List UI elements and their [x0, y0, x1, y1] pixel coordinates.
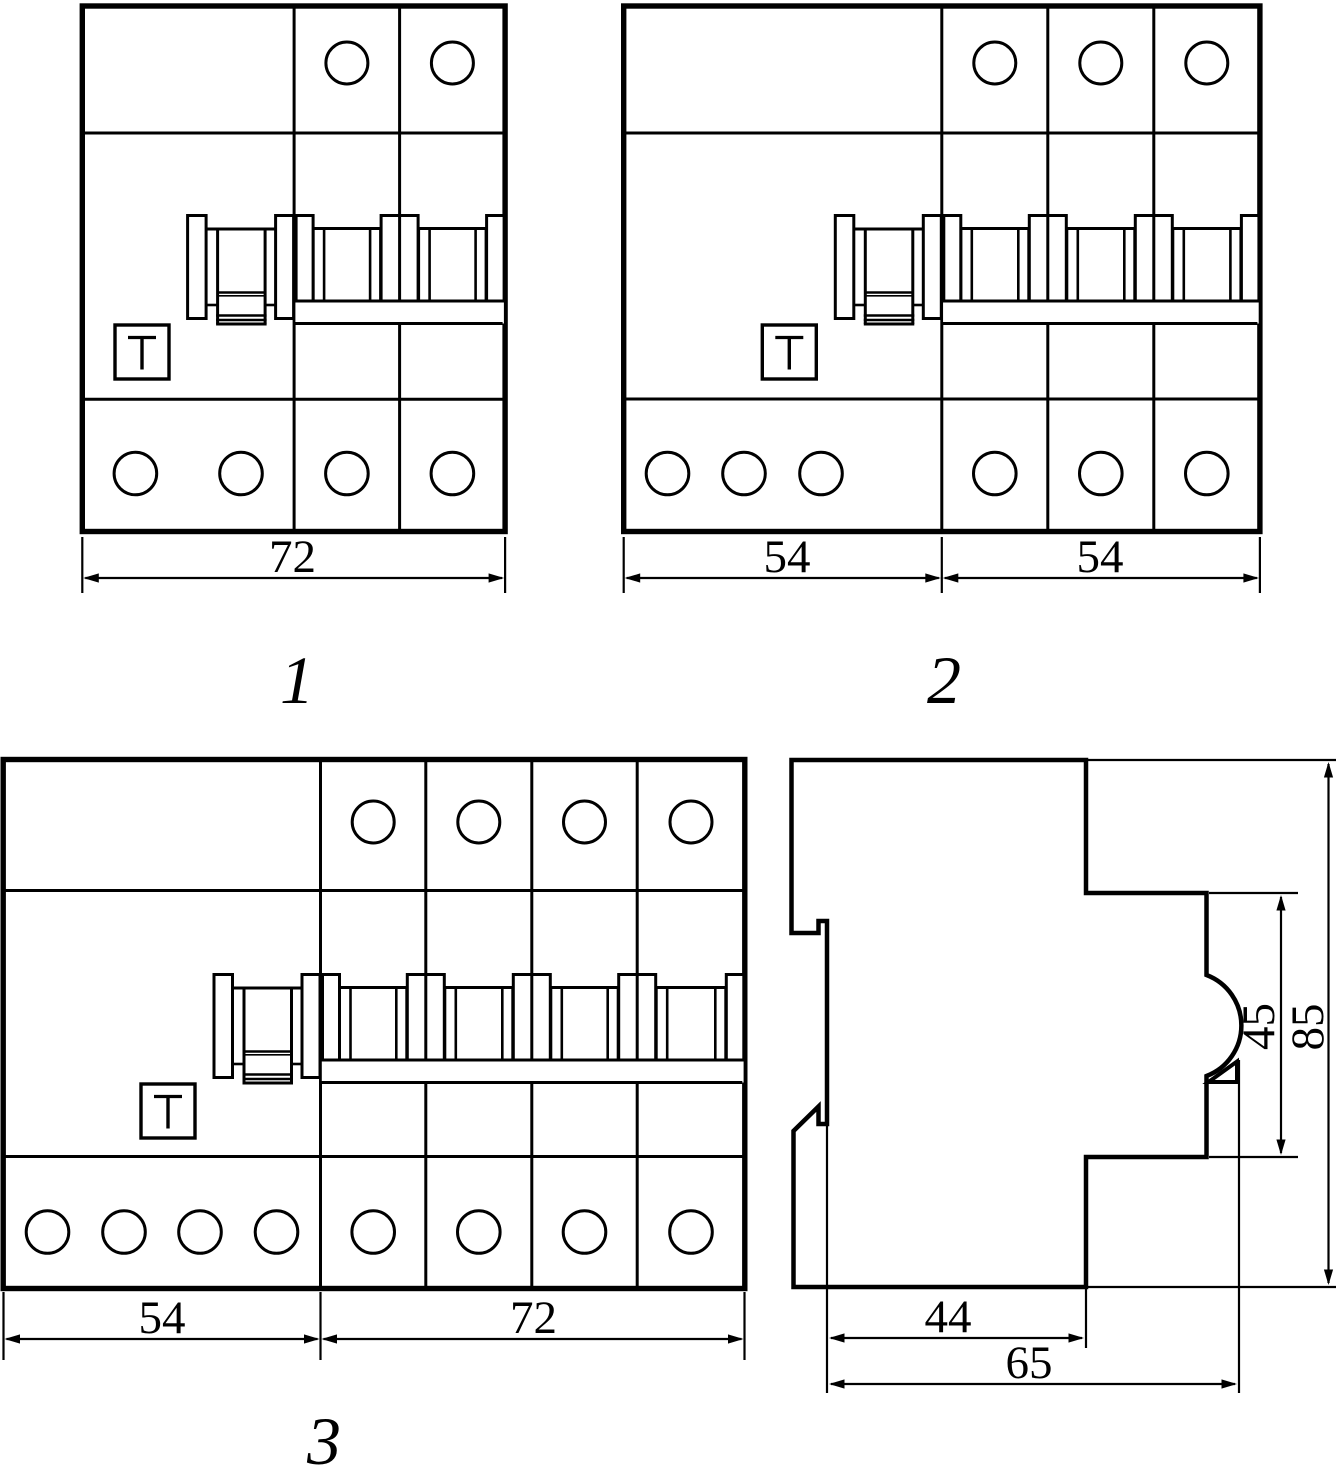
svg-text:54: 54 — [1077, 531, 1124, 583]
svg-text:45: 45 — [1233, 1003, 1285, 1050]
svg-text:54: 54 — [139, 1292, 186, 1344]
svg-text:85: 85 — [1282, 1004, 1334, 1051]
svg-text:2: 2 — [927, 642, 961, 718]
svg-text:72: 72 — [510, 1292, 557, 1344]
svg-text:3: 3 — [306, 1403, 341, 1479]
svg-text:72: 72 — [269, 531, 316, 583]
svg-text:54: 54 — [764, 531, 811, 583]
svg-text:44: 44 — [925, 1291, 972, 1343]
svg-text:65: 65 — [1006, 1337, 1053, 1389]
svg-text:1: 1 — [280, 642, 314, 718]
